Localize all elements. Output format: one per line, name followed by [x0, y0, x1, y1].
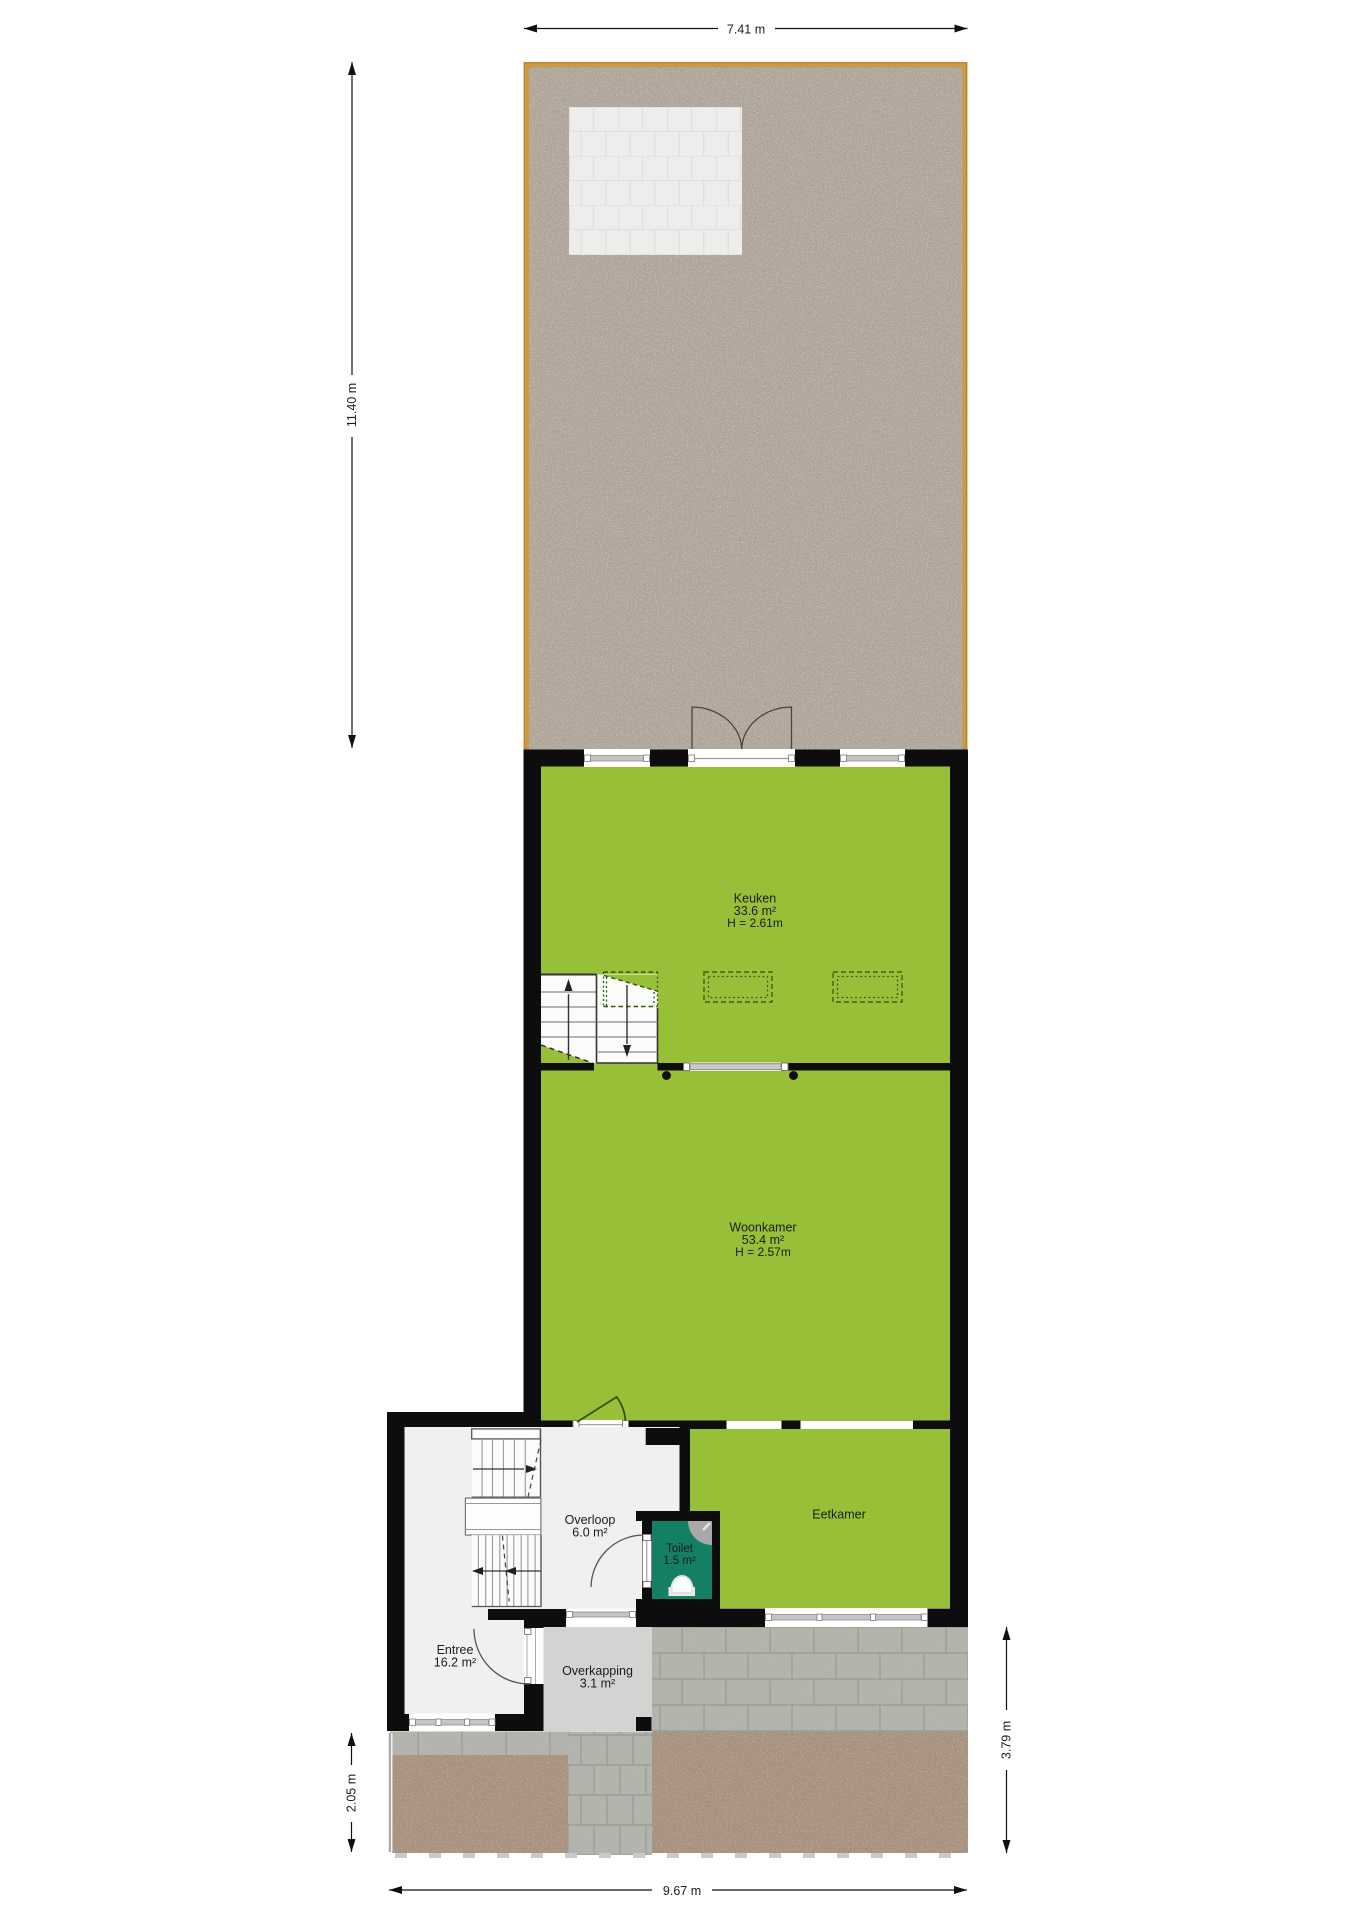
svg-text:1.5 m²: 1.5 m²	[663, 1555, 696, 1567]
svg-text:6.0 m²: 6.0 m²	[572, 1526, 607, 1540]
svg-text:9.67 m: 9.67 m	[663, 1884, 701, 1898]
svg-text:Toilet: Toilet	[666, 1543, 694, 1555]
svg-text:H = 2.61m: H = 2.61m	[727, 916, 783, 930]
svg-text:11.40 m: 11.40 m	[345, 383, 359, 427]
svg-text:3.79 m: 3.79 m	[1000, 1721, 1014, 1759]
svg-text:3.1 m²: 3.1 m²	[580, 1677, 615, 1691]
svg-text:Eetkamer: Eetkamer	[812, 1508, 866, 1522]
svg-text:2.05 m: 2.05 m	[345, 1774, 359, 1812]
svg-text:16.2 m²: 16.2 m²	[434, 1656, 476, 1670]
svg-text:H = 2.57m: H = 2.57m	[735, 1245, 791, 1259]
svg-text:7.41 m: 7.41 m	[727, 23, 765, 37]
